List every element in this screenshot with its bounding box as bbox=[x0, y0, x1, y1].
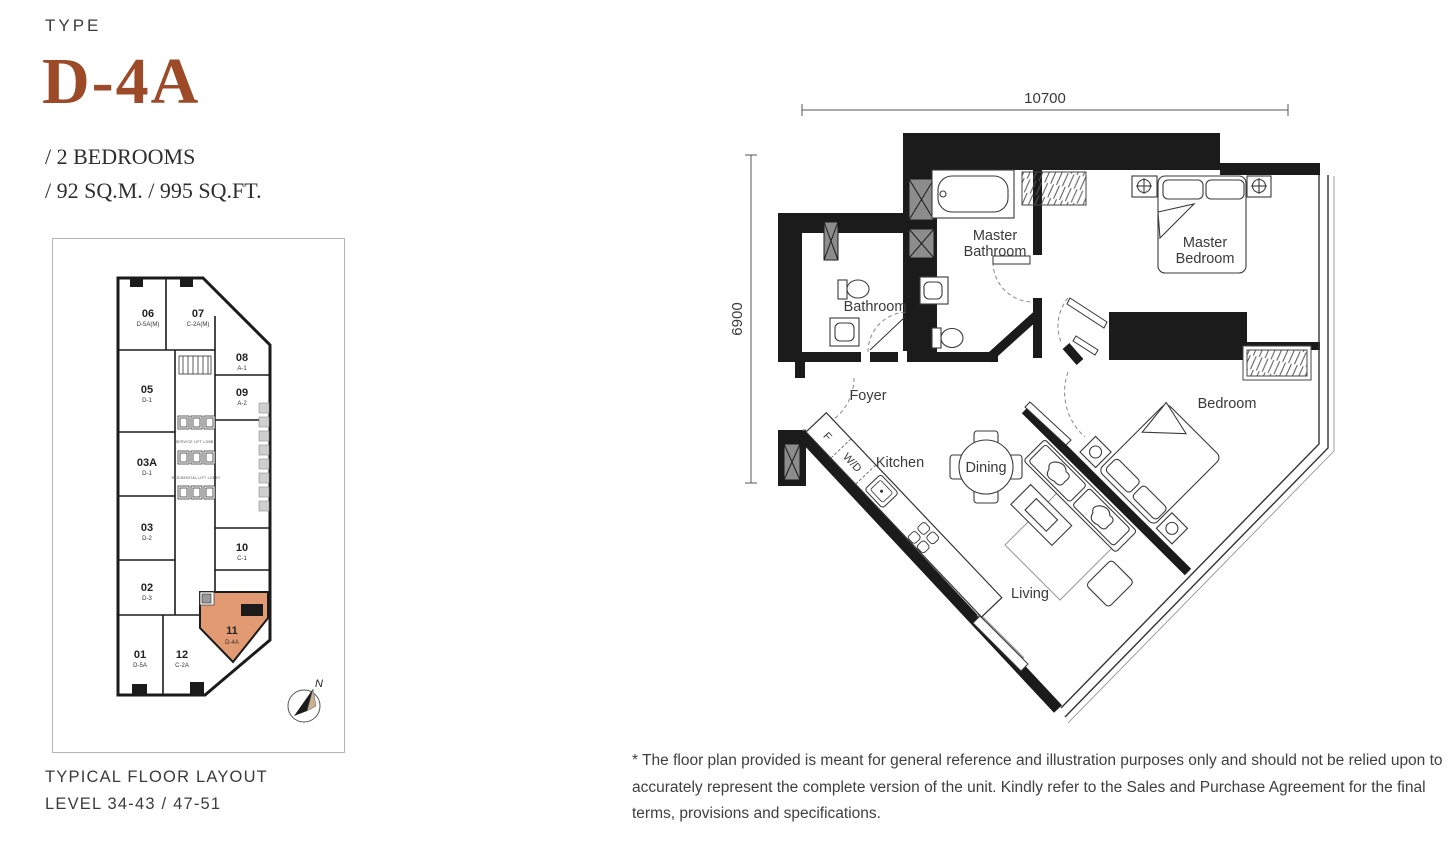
unit-03-number: 03 bbox=[141, 522, 153, 534]
unit-08-number: 08 bbox=[236, 352, 248, 364]
floor-caption: TYPICAL FLOOR LAYOUT LEVEL 34-43 / 47-51 bbox=[45, 764, 268, 818]
master-wardrobe bbox=[1022, 172, 1086, 205]
toilet-tank bbox=[838, 280, 847, 299]
label-dining: Dining bbox=[965, 460, 1006, 476]
unit-11-code: D-4A bbox=[225, 640, 239, 646]
unit-05-code: D-1 bbox=[142, 398, 152, 404]
unit-specs: / 2 BEDROOMS / 92 SQ.M. / 995 SQ.FT. bbox=[45, 140, 262, 208]
unit-03A-number: 03A bbox=[137, 457, 157, 469]
unit-03-code: D-2 bbox=[142, 536, 152, 542]
caption-line-1: TYPICAL FLOOR LAYOUT bbox=[45, 764, 268, 791]
label-master-bedroom-2: Bedroom bbox=[1176, 251, 1235, 267]
dim-height-label: 6900 bbox=[729, 302, 746, 335]
tv-console bbox=[973, 616, 1028, 671]
unit-09-number: 09 bbox=[236, 387, 248, 399]
residential-lift-lobby-label: RESIDENTIAL LIFT LOBBY bbox=[172, 476, 221, 480]
unit-02-number: 02 bbox=[141, 582, 153, 594]
unit-type-title: D-4A bbox=[42, 44, 200, 120]
unit-10-code: C-1 bbox=[237, 556, 247, 562]
disclaimer-text: * The floor plan provided is meant for g… bbox=[632, 748, 1455, 828]
unit-02-code: D-3 bbox=[142, 596, 152, 602]
unit-01-number: 01 bbox=[134, 649, 146, 661]
type-eyebrow: TYPE bbox=[45, 16, 101, 36]
unit-10-number: 10 bbox=[236, 542, 248, 554]
pillow bbox=[1163, 180, 1203, 199]
label-master-bathroom-1: Master bbox=[973, 228, 1017, 244]
unit-01-code: D-5A bbox=[133, 663, 147, 669]
compass-north-label: N bbox=[315, 678, 323, 690]
label-bathroom: Bathroom bbox=[844, 299, 907, 315]
label-master-bathroom-2: Bathroom bbox=[964, 244, 1027, 260]
dim-width-label: 10700 bbox=[1024, 90, 1066, 107]
unit-07-code: C-2A(M) bbox=[187, 322, 210, 328]
unit-07-number: 07 bbox=[192, 308, 204, 320]
unit-06-number: 06 bbox=[142, 308, 154, 320]
unit-03A-code: D-1 bbox=[142, 471, 152, 477]
label-foyer: Foyer bbox=[849, 388, 886, 404]
unit-05-number: 05 bbox=[141, 384, 153, 396]
unit-12-code: C-2A bbox=[175, 663, 189, 669]
key-plan: 06 D-5A(M) 07 C-2A(M) 08 A-1 09 A-2 05 D… bbox=[52, 238, 345, 753]
unit-09-code: A-2 bbox=[237, 401, 247, 407]
spec-bedrooms: / 2 BEDROOMS bbox=[45, 140, 262, 174]
toilet-bowl bbox=[847, 280, 869, 298]
toilet-tank bbox=[932, 328, 941, 348]
unit-08-code: A-1 bbox=[237, 366, 247, 372]
label-living: Living bbox=[1011, 586, 1049, 602]
unit-11-number: 11 bbox=[226, 625, 238, 637]
pillow bbox=[1206, 180, 1244, 199]
caption-line-2: LEVEL 34-43 / 47-51 bbox=[45, 791, 268, 818]
bedroom-wardrobe bbox=[1247, 350, 1307, 376]
unit-06-code: D-5A(M) bbox=[137, 322, 160, 328]
label-bedroom: Bedroom bbox=[1198, 396, 1257, 412]
main-floor-plan: 10700 6900 bbox=[630, 80, 1450, 740]
unit-12-number: 12 bbox=[176, 649, 188, 661]
label-master-bedroom-1: Master bbox=[1183, 235, 1227, 251]
spec-area: / 92 SQ.M. / 995 SQ.FT. bbox=[45, 174, 262, 208]
toilet-bowl bbox=[941, 329, 963, 348]
label-kitchen: Kitchen bbox=[876, 455, 924, 471]
service-lift-lobby-label: SERVICE LIFT LOBBY bbox=[176, 440, 217, 444]
